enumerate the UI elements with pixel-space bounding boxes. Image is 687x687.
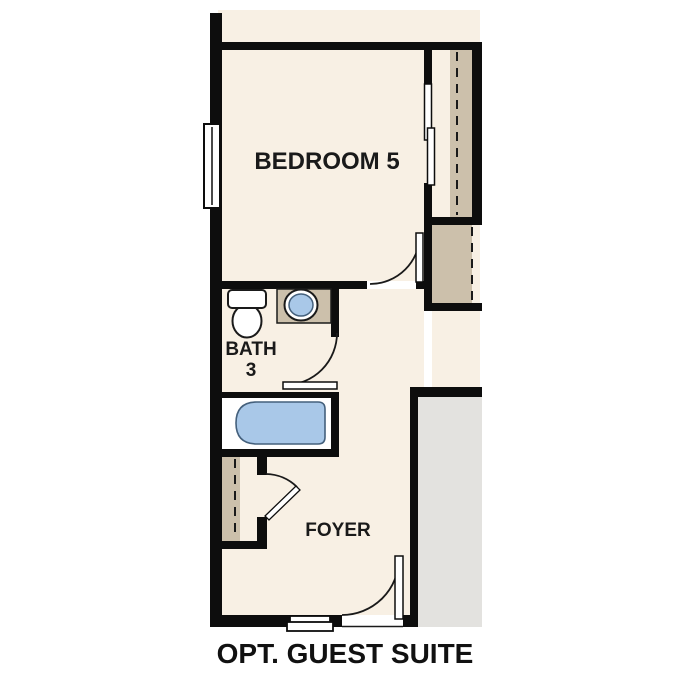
wall-closet-stub-bottom [424,183,432,217]
floor-closet-upper-shelf [450,50,472,217]
room-label-foyer: FOYER [283,521,393,541]
sink-basin [289,294,313,316]
toilet-tank [228,290,266,308]
window [204,124,220,208]
wall-closet-stub-top [424,50,432,85]
wall-right-upper [472,42,482,225]
wall-left-outer [210,13,222,627]
floor-closet-lower-shelf [432,225,472,303]
wall-bath-right [331,281,339,337]
floor-hall [339,289,424,387]
wall-bedroom-bottom [210,281,367,289]
wall-closet-lower-bottom [428,303,482,311]
sink-vanity [277,289,331,323]
floorplan-canvas: BEDROOM 5 BATH 3 FOYER OPT. GUEST SUITE [0,0,687,687]
wall-foyer-closet-stub-top [257,457,267,475]
wall-closet-upper-bottom [430,217,482,225]
room-label-bedroom-5: BEDROOM 5 [222,149,432,174]
floor-hall-nook [432,311,480,387]
floorplan-drawing [0,0,687,687]
wall-garage-left [410,387,418,627]
wall-tubroom-right [331,392,339,457]
toilet-bowl [233,305,262,338]
wall-garage-top [410,387,482,397]
front-door-leaf [395,556,403,619]
room-label-bath-3: BATH 3 [214,339,288,381]
wall-tub-top [222,392,339,398]
plan-title: OPT. GUEST SUITE [100,639,590,668]
wall-bedroom-top [218,42,482,50]
floor-top-band [218,10,480,42]
entry-step [287,616,333,631]
bath-door-leaf [283,382,337,389]
wall-closet-lower-left [424,217,432,311]
garage-area [418,397,482,627]
bedroom-door-leaf [416,233,423,282]
entry-step-lower [287,622,333,631]
floor-closet-lower-strip [472,225,480,303]
wall-tub-bottom [222,449,339,457]
wall-foyer-closet-bottom [210,541,267,549]
bathtub [236,402,325,444]
bath-label-line2: 3 [214,360,288,381]
floor-hall-mid [339,387,410,457]
wall-foyer-closet-stub-bottom [257,517,267,541]
bath-label-line1: BATH [214,339,288,360]
floor-foyer-closet-shelf [222,457,240,541]
